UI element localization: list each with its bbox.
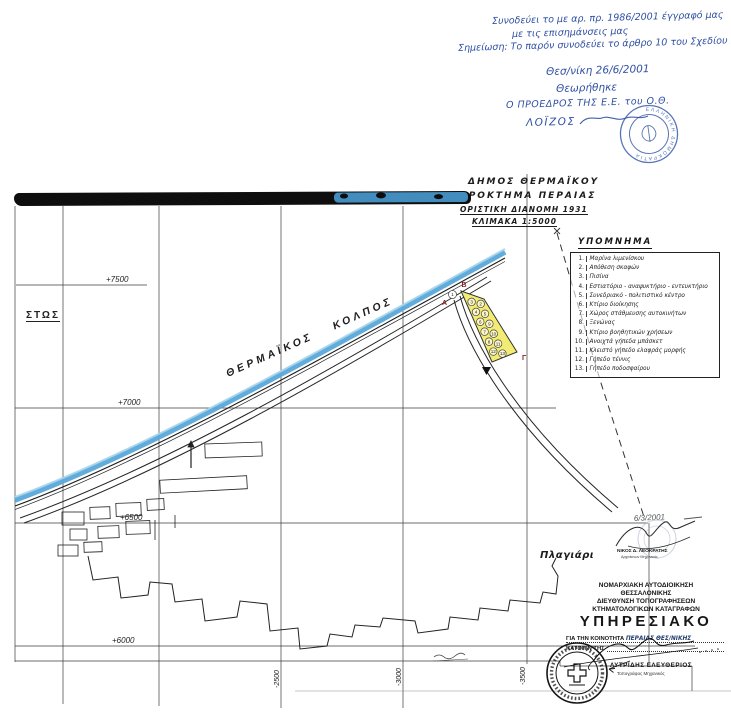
legend-item-label: Κτίριο διοίκησης xyxy=(587,302,639,308)
legend-item-number: 7. xyxy=(573,311,587,317)
legend-item: 12.Γήπεδο τέννις xyxy=(573,357,717,366)
coastal-road xyxy=(20,277,491,523)
legend-item-number: 13. xyxy=(573,366,587,372)
legend-item-label: Χώρος στάθμευσης αυτοκινήτων xyxy=(587,311,687,317)
checker-signature xyxy=(616,521,695,546)
marina-facility-numbers: 3 4 6 7 8 12 2 5 9 10 11 13 1 xyxy=(451,292,505,356)
office-katopin-line: ΚΑΤΟΠΙΝ ΤΗΣ xyxy=(566,645,724,652)
legend-item-number: 3. xyxy=(573,274,587,280)
marina-number: 5 xyxy=(484,311,487,316)
greek-cross-emblem xyxy=(568,664,586,682)
smudge-blob xyxy=(340,194,348,199)
coord-label: +6000 xyxy=(112,636,135,645)
legend-item-number: 5. xyxy=(573,293,587,299)
parcel-buildings xyxy=(58,441,262,556)
legend-item-number: 11. xyxy=(573,348,587,354)
handwritten-signer-title: Ο ΠΡΟΕΔΡΟΣ ΤΗΣ Ε.Ε. του Ο.Θ. xyxy=(506,95,670,111)
legend-item-number: 6. xyxy=(573,302,587,308)
office-line1: ΝΟΜΑΡΧΙΑΚΗ ΑΥΤΟΔΙΟΙΚΗΣΗ xyxy=(560,582,731,589)
office-for-line: ΓΙΑ ΤΗΝ ΚΟΙΝΟΤΗΤΑ ΠΕΡΑΙΑΣ ΘΕΣ/ΝΙΚΗΣ xyxy=(566,636,724,643)
checker-role: Αρχιτέκτων Μηχανικός xyxy=(621,555,658,559)
legend-item-number: 9. xyxy=(573,330,587,336)
grid-coordinate-labels: +7500 +7000 +6500 +6000 -2500 -3000 -350… xyxy=(106,275,527,688)
coord-label: +6500 xyxy=(120,513,143,522)
marina-number: 13 xyxy=(500,351,506,356)
legend-item-label: Εστιατόριο - αναψυκτήριο - εντευκτήριο xyxy=(587,284,708,290)
marina-number: 4 xyxy=(475,310,478,315)
office-for-printed: ΓΙΑ ΤΗΝ ΚΟΙΝΟΤΗΤΑ xyxy=(566,636,624,642)
date-note: 6/3/2001 xyxy=(634,512,666,523)
checker-area: 6/3/2001 ΝΙΚΟΣ Δ. ΛΕΟΚΡΑΤΗΣ Αρχιτέκτων Μ… xyxy=(616,512,702,559)
blue-signature-squiggle xyxy=(580,116,648,124)
legend-item-number: 4. xyxy=(573,284,587,290)
blue-stamp-text: ΕΛΛΗΝΙΚΗ ΔΗΜΟΚΡΑΤΙΑ xyxy=(627,103,679,163)
handwritten-signer-name: ΛΟΪΖΟΣ xyxy=(526,116,576,129)
coast-highlight-in-band xyxy=(334,192,468,203)
faint-round-stamp xyxy=(638,520,676,558)
marina-number: 10 xyxy=(491,331,497,336)
legend-item-number: 12. xyxy=(573,357,587,363)
marina-number: 3 xyxy=(470,300,473,305)
office-katopin-label: ΚΑΤΟΠΙΝ ΤΗΣ xyxy=(566,646,605,652)
office-for-handwritten: ΠΕΡΑΙΑΣ ΘΕΣ/ΝΙΚΗΣ xyxy=(626,636,691,642)
office-line4: ΚΤΗΜΑΤΟΛΟΓΙΚΩΝ ΚΑΤΑΓΡΑΦΩΝ xyxy=(560,606,731,613)
legend-item-label: Μαρίνα λιμενίσκου xyxy=(587,256,645,262)
marina-number: 12 xyxy=(491,349,497,354)
legend-item-label: Πισίνα xyxy=(587,274,609,280)
checker-name: ΝΙΚΟΣ Δ. ΛΕΟΚΡΑΤΗΣ xyxy=(617,548,668,554)
handwritten-approval: Θεωρήθηκε xyxy=(556,81,617,95)
coastline xyxy=(15,249,505,510)
legend-item: 8.Ξενώνας xyxy=(573,320,717,329)
legend-item-label: Γήπεδο ποδοσφαίρου xyxy=(587,366,650,372)
scanned-map-document: +7500 +7000 +6500 +6000 -2500 -3000 -350… xyxy=(0,0,731,717)
village-label: Πλαγιάρι xyxy=(540,550,594,561)
marina-number: 8 xyxy=(488,339,491,344)
dotted-fill-line xyxy=(607,645,724,652)
handwritten-date-place: Θεσ/νίκη 26/6/2001 xyxy=(546,63,650,78)
coord-label-rotated: -3500 xyxy=(520,667,527,685)
map-title-municipality: ΔΗΜΟΣ ΘΕΡΜΑΪΚΟΥ xyxy=(468,177,599,187)
legend-item-number: 2. xyxy=(573,265,587,271)
marina-number: 7 xyxy=(483,329,486,334)
legend-item: 3.Πισίνα xyxy=(573,274,717,283)
map-title-scale: ΚΛΙΜΑΚΑ 1:5000 xyxy=(472,217,557,227)
legend-item: 2.Απόθεση σκαφών xyxy=(573,265,717,274)
corner-letter: Β xyxy=(461,282,466,289)
survey-triangle-mark xyxy=(482,367,491,375)
legend-item-number: 10. xyxy=(573,339,587,345)
village-outline xyxy=(88,556,558,649)
legend-item: 4.Εστιατόριο - αναψυκτήριο - εντευκτήριο xyxy=(573,284,717,293)
legend: ΥΠΟΜΝΗΜΑ 1.Μαρίνα λιμενίσκου 2.Απόθεση σ… xyxy=(570,231,720,378)
legend-item-number: 1. xyxy=(573,256,587,262)
coord-label: +7500 xyxy=(106,275,129,284)
legend-item-label: Γήπεδο τέννις xyxy=(587,357,631,363)
legend-item-label: Απόθεση σκαφών xyxy=(587,265,640,271)
map-title-distribution: ΟΡΙΣΤΙΚΗ ΔΙΑΝΟΜΗ 1931 xyxy=(460,205,588,215)
corner-letter: Γ xyxy=(522,355,527,362)
partial-left-label: ΣΤΩΣ xyxy=(26,310,60,322)
office-line3: ΔΙΕΥΘΥΝΣΗ ΤΟΠΟΓΡΑΦΗΣΕΩΝ xyxy=(560,598,731,605)
coord-label-rotated: -2500 xyxy=(274,670,281,688)
marina-corner-letters: Α Β Γ xyxy=(442,282,527,362)
svg-text:ΕΛΛΗΝΙΚΗ ΔΗΜΟΚΡΑΤΙΑ: ΕΛΛΗΝΙΚΗ ΔΗΜΟΚΡΑΤΙΑ xyxy=(627,103,679,163)
map-title-estate: ΑΓΡΟΚΤΗΜΑ ΠΕΡΑΙΑΣ xyxy=(452,191,596,201)
smudge-blob xyxy=(434,194,443,199)
legend-item: 9.Κτίριο βοηθητικών χρήσεων xyxy=(573,330,717,339)
office-signer-role: Τοπογράφος Μηχανικός xyxy=(617,671,665,676)
coord-label: +7000 xyxy=(118,398,141,407)
marina-number: 11 xyxy=(496,341,501,346)
legend-item-label: Κτίριο βοηθητικών χρήσεων xyxy=(587,330,673,336)
legend-item-label: Ανοιχτά γήπεδα μπάσκετ xyxy=(587,339,663,345)
scan-smudge-band xyxy=(14,191,471,206)
marina-number: 6 xyxy=(479,319,482,324)
legend-item-label: Κλειστό γήπεδο ελαφράς μορφής xyxy=(587,348,686,354)
legend-item-number: 8. xyxy=(573,320,587,326)
blue-round-stamp: ΕΛΛΗΝΙΚΗ ΔΗΜΟΚΡΑΤΙΑ xyxy=(617,102,681,166)
monument-symbol xyxy=(188,441,194,468)
legend-title: ΥΠΟΜΝΗΜΑ xyxy=(578,237,652,249)
legend-item: 6.Κτίριο διοίκησης xyxy=(573,302,717,311)
office-signer-name: ΛΥΤΡΙΔΗΣ ΕΛΕΥΘΕΡΙΟΣ xyxy=(610,662,692,669)
coord-label-rotated: -3000 xyxy=(396,668,403,686)
marina-number: 1 xyxy=(451,292,454,297)
legend-item: 10.Ανοιχτά γήπεδα μπάσκετ xyxy=(573,339,717,348)
smudge-blob xyxy=(376,192,386,198)
legend-item: 13.Γήπεδο ποδοσφαίρου xyxy=(573,366,717,375)
black-round-stamp xyxy=(547,643,607,703)
office-doc-type: ΥΠΗΡΕΣΙΑΚΟ xyxy=(560,613,731,630)
marina-zone: 3 4 6 7 8 12 2 5 9 10 11 13 1 Α Β Γ xyxy=(442,282,527,375)
legend-item: 11.Κλειστό γήπεδο ελαφράς μορφής xyxy=(573,348,717,357)
legend-item: 1.Μαρίνα λιμενίσκου xyxy=(573,256,717,265)
legend-item-label: Ξενώνας xyxy=(587,320,615,326)
sea-label: ΘΕΡΜΑΪΚΟΣ ΚΟΛΠΟΣ xyxy=(224,294,395,380)
legend-item: 5.Συνεδριακό - πολιτιστικό κέντρο xyxy=(573,293,717,302)
legend-item-label: Συνεδριακό - πολιτιστικό κέντρο xyxy=(587,293,685,299)
legend-item: 7.Χώρος στάθμευσης αυτοκινήτων xyxy=(573,311,717,320)
corner-letter: Α xyxy=(442,300,447,307)
marina-number: 2 xyxy=(479,302,482,307)
legend-box: 1.Μαρίνα λιμενίσκου 2.Απόθεση σκαφών 3.Π… xyxy=(570,252,720,378)
handwritten-note-line1: Συνοδεύει το με αρ. πρ. 1986/2001 έγγραφ… xyxy=(492,10,724,27)
office-line2: ΘΕΣΣΑΛΟΝΙΚΗΣ xyxy=(560,590,731,597)
tiny-handwritten-note xyxy=(433,653,468,661)
marina-number: 9 xyxy=(488,321,491,326)
